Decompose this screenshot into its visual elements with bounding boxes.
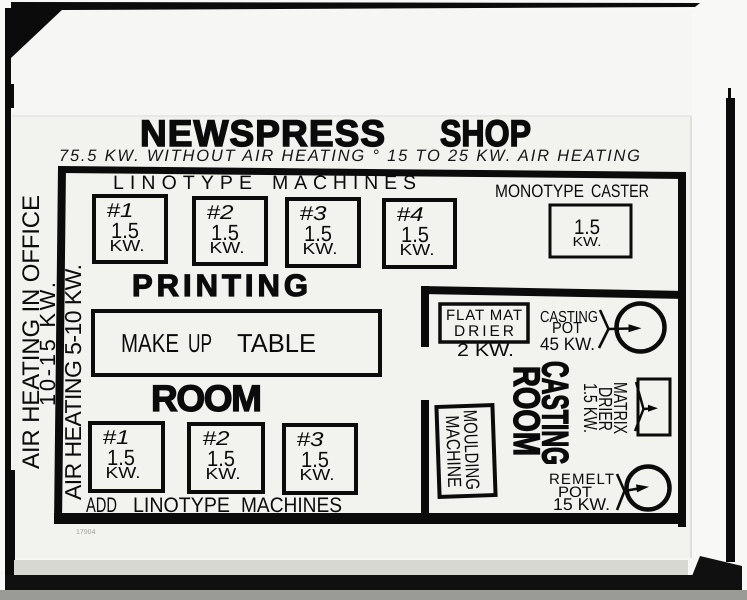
svg-text:17904: 17904: [76, 529, 96, 536]
svg-text:2 KW.: 2 KW.: [457, 340, 514, 360]
svg-text:MONOTYPE: MONOTYPE: [495, 181, 584, 201]
svg-text:15 KW.: 15 KW.: [553, 495, 610, 514]
svg-text:FLAT MAT: FLAT MAT: [446, 307, 522, 324]
svg-text:MAKE: MAKE: [121, 328, 179, 358]
svg-text:10-15 KW.: 10-15 KW.: [35, 282, 60, 406]
svg-text:TABLE: TABLE: [237, 328, 316, 358]
svg-text:KW.: KW.: [303, 241, 338, 258]
svg-text:KW.: KW.: [206, 466, 241, 483]
svg-text:DRIER: DRIER: [454, 323, 514, 340]
svg-text:LINOTYPE: LINOTYPE: [133, 494, 230, 517]
svg-text:CASTER: CASTER: [591, 181, 649, 201]
svg-text:AIR HEATING 5-10 KW.: AIR HEATING 5-10 KW.: [60, 264, 86, 500]
svg-text:MACHINES: MACHINES: [241, 494, 342, 517]
svg-text:MACHINE: MACHINE: [441, 415, 464, 488]
svg-text:1.5 KW.: 1.5 KW.: [579, 383, 600, 433]
svg-text:ROOM: ROOM: [151, 378, 262, 419]
svg-text:MACHINES: MACHINES: [272, 172, 416, 194]
svg-text:LINOTYPE: LINOTYPE: [113, 172, 252, 194]
svg-text:KW.: KW.: [573, 234, 602, 249]
svg-text:ROOM: ROOM: [506, 366, 547, 456]
svg-text:75.5 KW. WITHOUT AIR HEATING °: 75.5 KW. WITHOUT AIR HEATING ° 15 TO 25 …: [59, 147, 640, 165]
svg-text:45 KW.: 45 KW.: [540, 334, 595, 354]
svg-text:ADD: ADD: [86, 494, 117, 517]
svg-text:KW.: KW.: [300, 467, 335, 484]
svg-text:KW.: KW.: [106, 465, 141, 482]
svg-text:KW.: KW.: [400, 242, 435, 259]
svg-text:KW.: KW.: [210, 240, 245, 257]
svg-text:UP: UP: [188, 328, 212, 358]
svg-text:KW.: KW.: [110, 238, 145, 255]
